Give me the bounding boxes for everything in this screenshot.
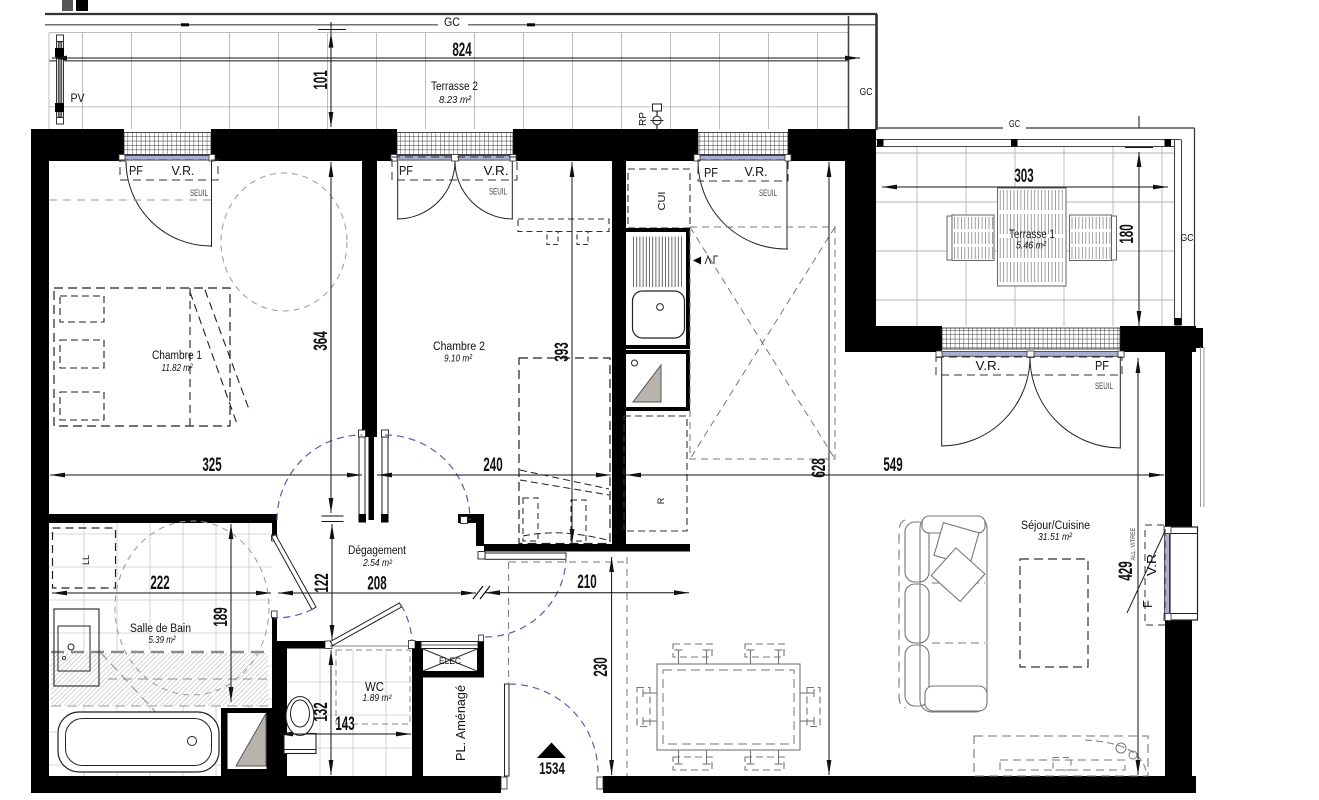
svg-text:ALL. VITREE: ALL. VITREE [1131,528,1137,561]
svg-text:1534: 1534 [539,760,565,778]
svg-text:PL. Aménagé: PL. Aménagé [454,685,468,761]
svg-text:1.89 m²: 1.89 m² [363,693,393,704]
svg-text:132: 132 [311,702,332,721]
svg-text:189: 189 [211,607,232,626]
svg-text:F: F [1140,600,1155,608]
svg-text:11.82 m²: 11.82 m² [162,362,193,374]
svg-text:325: 325 [202,455,222,476]
svg-text:V.R.: V.R. [1144,550,1159,576]
svg-text:V.R.: V.R. [976,358,1001,373]
svg-text:101: 101 [311,70,332,90]
svg-text:V.R.: V.R. [745,164,768,179]
svg-text:ELEC: ELEC [439,656,461,667]
svg-text:549: 549 [883,455,902,476]
svg-text:393: 393 [552,342,573,361]
svg-text:210: 210 [577,572,596,593]
svg-text:SEUIL: SEUIL [1095,381,1113,391]
svg-text:122: 122 [312,573,333,592]
svg-text:230: 230 [591,657,612,676]
svg-text:240: 240 [483,455,502,476]
svg-text:824: 824 [452,40,472,61]
svg-text:SEUIL: SEUIL [759,188,777,198]
svg-text:Terrasse 2: Terrasse 2 [431,81,478,93]
svg-text:180: 180 [1117,224,1138,243]
svg-text:5.39 m²: 5.39 m² [149,634,176,646]
svg-text:Chambre 2: Chambre 2 [433,341,485,353]
svg-text:Chambre 1: Chambre 1 [152,350,202,362]
svg-text:PF: PF [704,165,718,180]
svg-text:GC: GC [1009,119,1020,130]
svg-text:GC: GC [860,86,873,98]
svg-text:143: 143 [335,714,354,735]
svg-text:RP: RP [638,112,649,126]
svg-text:V.R.: V.R. [484,163,509,178]
svg-text:429: 429 [1116,561,1137,580]
svg-text:CUI: CUI [657,192,668,211]
svg-text:GC: GC [444,15,460,29]
svg-text:V.R.: V.R. [172,163,195,178]
svg-text:364: 364 [311,331,332,351]
svg-text:8.23 m²: 8.23 m² [439,94,471,106]
svg-text:LL: LL [81,555,91,565]
svg-text:5.46 m²: 5.46 m² [1016,240,1046,252]
svg-text:31.51 m²: 31.51 m² [1038,531,1072,543]
svg-text:PF: PF [399,163,413,178]
svg-text:SEUIL: SEUIL [190,188,208,198]
svg-text:PV: PV [71,91,85,105]
svg-text:222: 222 [150,573,169,594]
svg-text:PF: PF [129,163,143,178]
svg-text:628: 628 [809,458,830,477]
svg-text:SEUIL: SEUIL [489,187,507,197]
svg-text:WC: WC [365,679,384,694]
svg-text:9.10 m²: 9.10 m² [444,353,472,365]
svg-text:2.54 m²: 2.54 m² [362,558,392,569]
svg-text:Dégagement: Dégagement [348,545,407,557]
svg-text:303: 303 [1014,166,1033,187]
svg-text:PF: PF [1095,358,1109,373]
svg-text:208: 208 [367,574,386,595]
svg-text:R: R [656,497,666,504]
svg-text:GC: GC [1181,232,1194,244]
